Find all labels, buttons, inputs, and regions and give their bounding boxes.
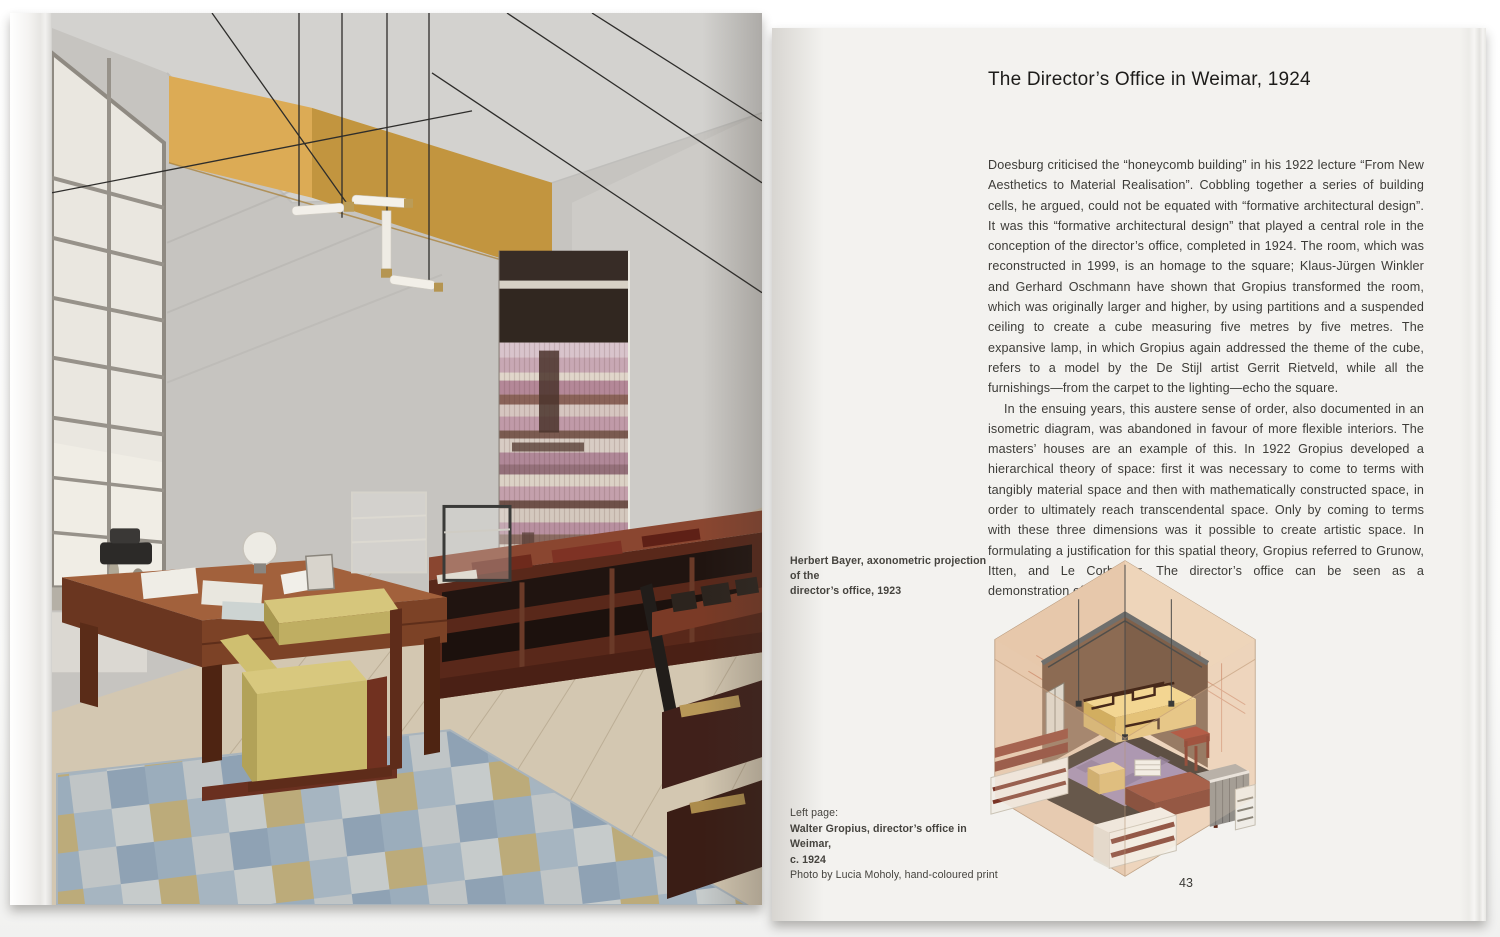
right-page: The Director’s Office in Weimar, 1924 Do… xyxy=(772,28,1486,921)
axonometric-figure xyxy=(975,545,1275,890)
body-text: Doesburg criticised the “honeycomb build… xyxy=(988,155,1424,602)
gutter-shadow xyxy=(702,13,762,905)
page-number: 43 xyxy=(1086,876,1286,890)
office-photograph xyxy=(52,13,762,905)
page-stack-edge xyxy=(10,13,52,905)
left-page-caption: Left page: Walter Gropius, director’s of… xyxy=(790,806,1000,884)
gutter-shade xyxy=(772,28,824,921)
figure-caption: Herbert Bayer, axonometric projection of… xyxy=(790,554,995,599)
page-title: The Director’s Office in Weimar, 1924 xyxy=(988,69,1458,91)
left-page xyxy=(10,13,762,905)
page-stack-edge-right xyxy=(1460,28,1486,921)
paragraph-1: Doesburg criticised the “honeycomb build… xyxy=(988,155,1424,399)
